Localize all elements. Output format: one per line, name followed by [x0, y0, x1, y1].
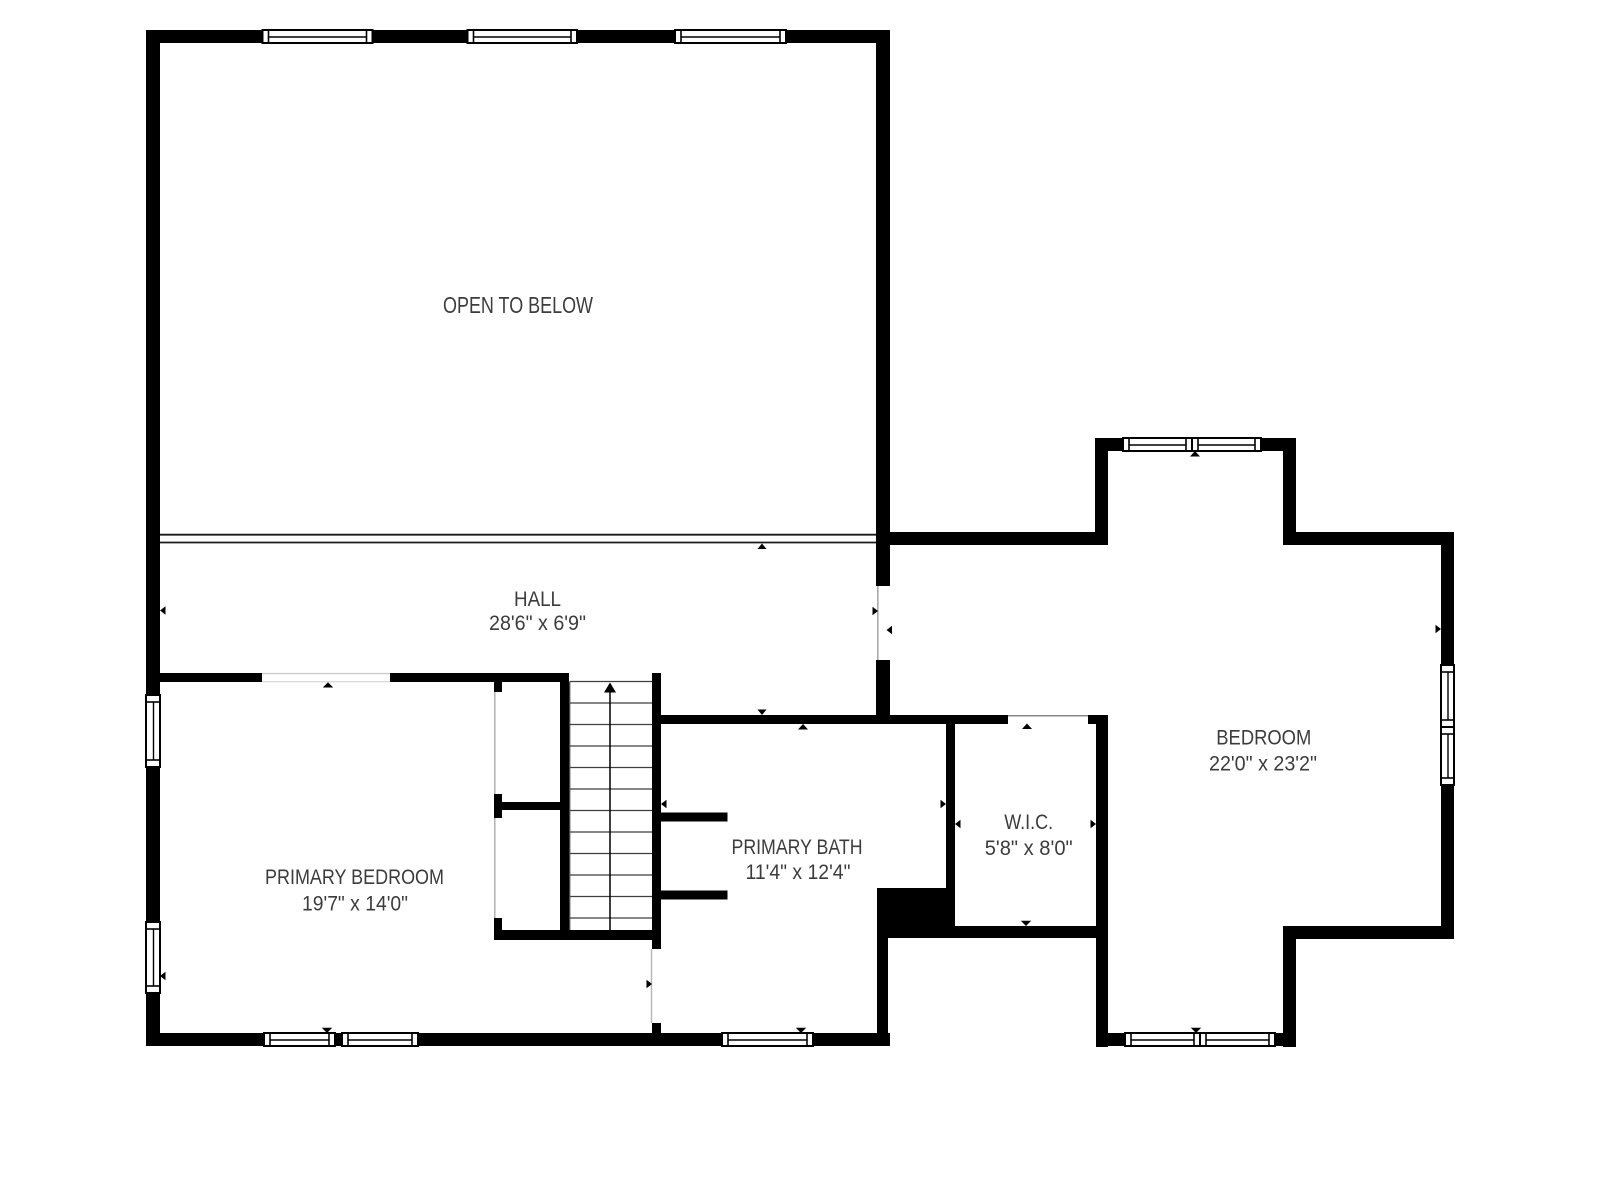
svg-text:BEDROOM: BEDROOM — [1216, 727, 1311, 750]
svg-text:22'0" x 23'2": 22'0" x 23'2" — [1209, 753, 1317, 776]
svg-text:28'6" x 6'9": 28'6" x 6'9" — [489, 612, 586, 635]
svg-text:HALL: HALL — [514, 588, 561, 611]
svg-text:11'4" x 12'4": 11'4" x 12'4" — [746, 861, 851, 884]
svg-text:PRIMARY BATH: PRIMARY BATH — [732, 836, 863, 859]
svg-text:19'7" x 14'0": 19'7" x 14'0" — [302, 893, 408, 916]
svg-text:OPEN TO BELOW: OPEN TO BELOW — [443, 292, 593, 318]
svg-text:PRIMARY BEDROOM: PRIMARY BEDROOM — [265, 866, 444, 889]
svg-text:5'8" x 8'0": 5'8" x 8'0" — [985, 837, 1073, 860]
svg-text:W.I.C.: W.I.C. — [1004, 811, 1053, 834]
